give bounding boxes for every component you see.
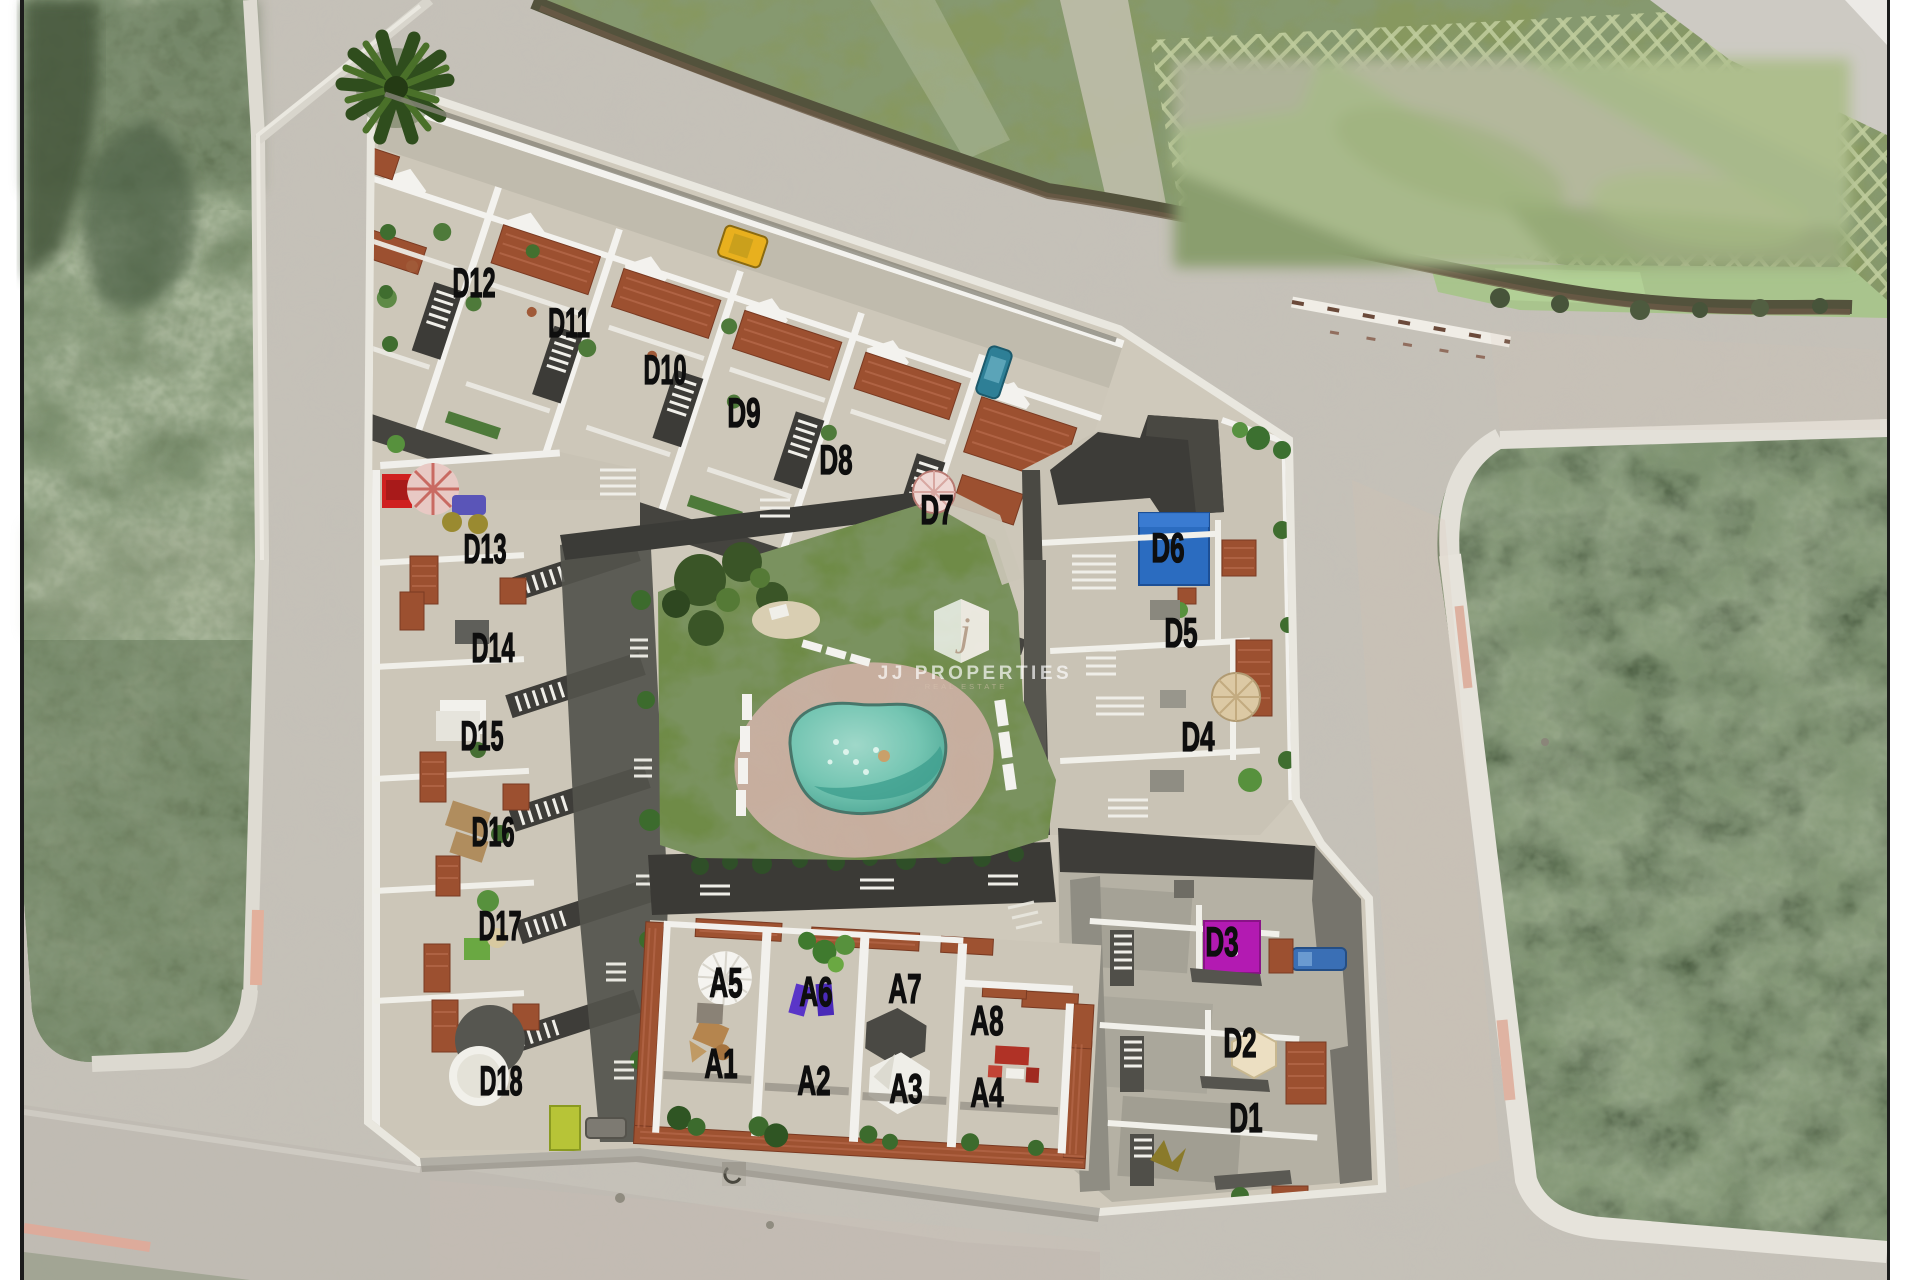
svg-text:JJ PROPERTIES: JJ PROPERTIES	[878, 663, 1072, 684]
svg-text:A4: A4	[970, 1070, 1004, 1117]
svg-text:A1: A1	[704, 1041, 737, 1088]
svg-text:D7: D7	[920, 487, 953, 534]
svg-text:A8: A8	[970, 998, 1003, 1045]
svg-text:D16: D16	[471, 809, 514, 856]
svg-text:D15: D15	[460, 713, 503, 760]
svg-text:D4: D4	[1181, 714, 1215, 761]
svg-text:D6: D6	[1151, 525, 1184, 572]
svg-text:D5: D5	[1164, 610, 1197, 657]
svg-text:D13: D13	[463, 526, 506, 573]
svg-text:D8: D8	[819, 437, 852, 484]
svg-text:D10: D10	[643, 347, 686, 394]
svg-text:D18: D18	[479, 1058, 522, 1105]
svg-text:D11: D11	[548, 300, 590, 347]
svg-text:D2: D2	[1223, 1020, 1256, 1067]
svg-text:A6: A6	[799, 969, 832, 1016]
svg-text:A3: A3	[889, 1066, 922, 1113]
svg-text:A5: A5	[709, 960, 742, 1007]
svg-text:D17: D17	[478, 903, 521, 950]
svg-text:D9: D9	[727, 390, 760, 437]
svg-text:D14: D14	[471, 625, 514, 672]
svg-text:D1: D1	[1229, 1095, 1262, 1142]
svg-text:REAL ESTATE: REAL ESTATE	[925, 682, 1007, 691]
svg-text:A2: A2	[797, 1058, 830, 1105]
svg-text:D3: D3	[1205, 919, 1238, 966]
svg-text:D12: D12	[452, 260, 495, 307]
svg-text:A7: A7	[888, 966, 921, 1013]
